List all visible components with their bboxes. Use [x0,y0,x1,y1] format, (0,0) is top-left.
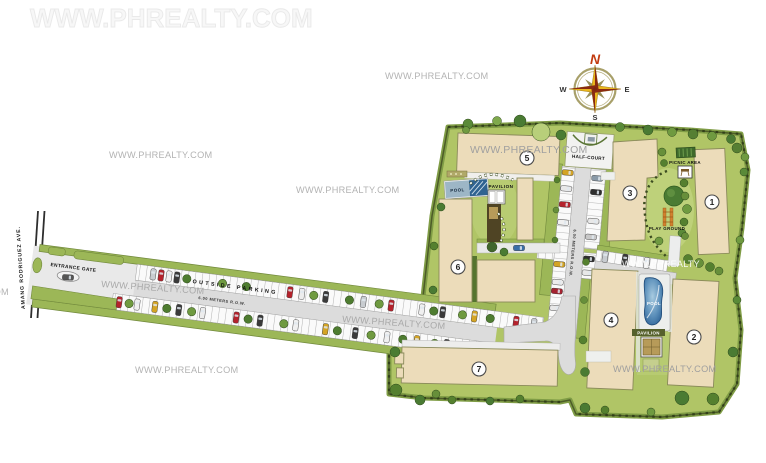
svg-text:WWW.PHREALTY.COM: WWW.PHREALTY.COM [385,71,488,81]
svg-text:E: E [624,85,629,94]
svg-text:PAVILION: PAVILION [637,331,659,336]
svg-text:WWW.PHREALTY.COM: WWW.PHREALTY.COM [613,364,716,374]
svg-text:POOL: POOL [647,301,661,306]
svg-text:N: N [590,51,601,67]
svg-text:PICNIC AREA: PICNIC AREA [669,160,701,165]
svg-text:3: 3 [628,188,633,198]
svg-text:POOL: POOL [450,187,465,193]
svg-text:WWW.PHREALTY.COM: WWW.PHREALTY.COM [470,144,588,156]
svg-text:WWW.PHREALTY.COM: WWW.PHREALTY.COM [296,185,399,195]
svg-text:2: 2 [692,332,697,342]
svg-text:WWW.PHREALTY: WWW.PHREALTY [622,259,700,269]
svg-text:6: 6 [456,262,461,272]
svg-text:WWW.PHREALTY.COM: WWW.PHREALTY.COM [30,3,313,33]
svg-text:W: W [559,85,567,94]
svg-text:WWW.PHREALTY.COM: WWW.PHREALTY.COM [135,365,238,375]
svg-text:1: 1 [710,197,715,207]
svg-text:S: S [592,113,597,122]
svg-text:WWW.PHREALTY.COM: WWW.PHREALTY.COM [0,287,9,297]
svg-text:AMANG RODRIGUEZ AVE.: AMANG RODRIGUEZ AVE. [16,226,27,309]
svg-text:PLAY GROUND: PLAY GROUND [649,226,685,231]
svg-text:PAVILION: PAVILION [488,184,513,189]
svg-text:4: 4 [609,315,614,325]
svg-text:7: 7 [477,364,482,374]
svg-text:WWW.PHREALTY.COM: WWW.PHREALTY.COM [109,150,212,160]
